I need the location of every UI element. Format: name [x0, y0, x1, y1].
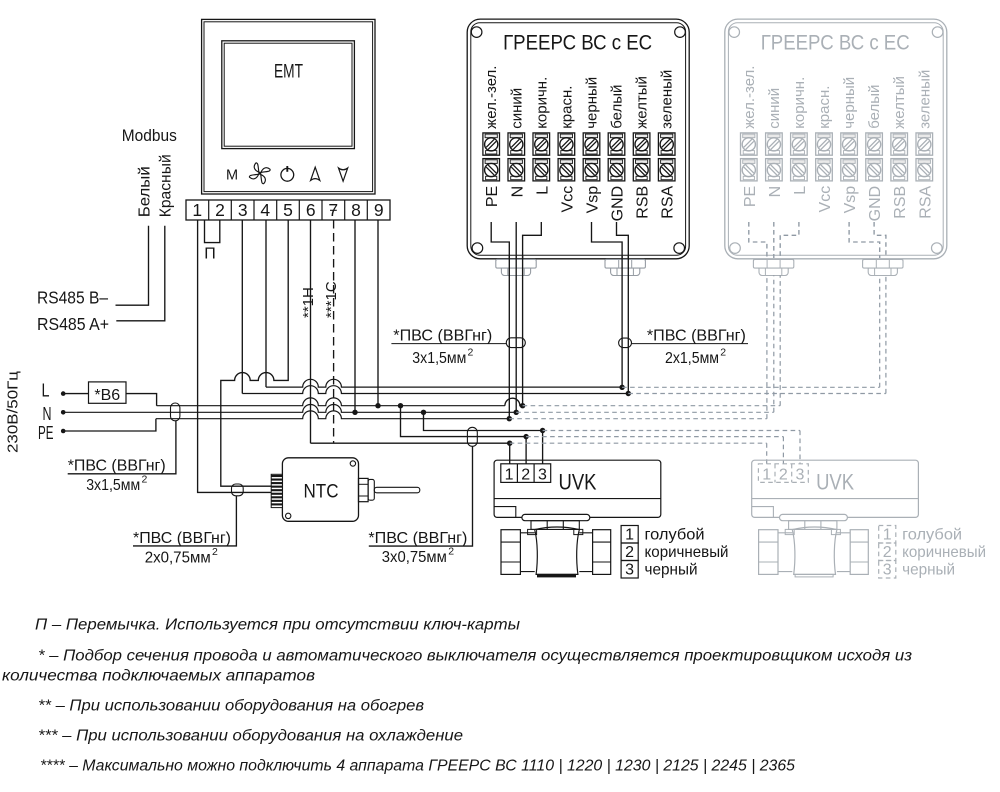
svg-text:2: 2 [142, 473, 148, 485]
svg-text:PE: PE [484, 186, 501, 207]
svg-text:красн.: красн. [816, 86, 833, 129]
svg-text:черный: черный [584, 77, 601, 129]
svg-text:3: 3 [883, 562, 892, 579]
svg-text:M: M [226, 168, 238, 184]
svg-text:ГРЕЕРС ВС с ЕС: ГРЕЕРС ВС с ЕС [503, 32, 652, 55]
svg-text:2х0,75мм: 2х0,75мм [145, 549, 211, 566]
svg-text:GND: GND [867, 186, 884, 222]
svg-text:жел.-зел.: жел.-зел. [483, 66, 500, 129]
svg-text:N: N [509, 186, 526, 198]
svg-text:голубой: голубой [645, 526, 705, 543]
svg-text:2: 2 [883, 544, 892, 561]
svg-text:*ПВС (ВВГнг): *ПВС (ВВГнг) [647, 327, 746, 344]
svg-text:6: 6 [306, 200, 316, 220]
svg-text:8: 8 [351, 200, 361, 220]
svg-text:Vsp: Vsp [585, 186, 602, 214]
svg-text:Modbus: Modbus [122, 126, 177, 145]
svg-text:Vcc: Vcc [559, 186, 576, 213]
svg-text:L: L [42, 380, 50, 400]
svg-text:* – Подбор сечения провода и а: * – Подбор сечения провода и автоматичес… [38, 648, 912, 665]
svg-text:9: 9 [374, 200, 384, 220]
svg-text:L: L [534, 186, 551, 195]
svg-text:2: 2 [468, 346, 474, 358]
svg-text:2: 2 [212, 546, 218, 558]
svg-text:*ПВС (ВВГнг): *ПВС (ВВГнг) [133, 530, 231, 547]
svg-text:желтый: желтый [634, 76, 651, 129]
svg-text:*** – При использовании оборуд: *** – При использовании оборудования на … [38, 728, 463, 745]
svg-text:3: 3 [538, 467, 547, 484]
svg-text:белый: белый [866, 85, 883, 129]
svg-text:RSB: RSB [892, 186, 909, 219]
svg-text:2: 2 [521, 467, 530, 484]
svg-text:2: 2 [215, 200, 225, 220]
svg-text:2: 2 [448, 546, 454, 558]
svg-text:1: 1 [762, 467, 771, 484]
svg-text:черный: черный [645, 561, 698, 578]
svg-text:2: 2 [625, 544, 634, 561]
svg-text:RSA: RSA [917, 185, 934, 218]
svg-text:3х1,5мм: 3х1,5мм [412, 350, 466, 367]
svg-text:L: L [792, 186, 809, 195]
svg-text:UVK: UVK [816, 470, 854, 495]
svg-text:коричневый: коричневый [902, 544, 986, 561]
svg-text:Vsp: Vsp [842, 186, 859, 214]
svg-text:синий: синий [766, 88, 783, 129]
svg-text:3х0,75мм: 3х0,75мм [382, 549, 447, 566]
svg-text:Красный: Красный [158, 154, 175, 217]
svg-text:5: 5 [283, 200, 293, 220]
svg-text:**** – Максимально можно подкл: **** – Максимально можно подключить 4 ап… [40, 758, 795, 775]
svg-text:EMT: EMT [274, 62, 303, 83]
svg-text:коричн.: коричн. [533, 77, 550, 129]
svg-text:красн.: красн. [558, 86, 575, 129]
svg-text:N: N [43, 404, 52, 424]
svg-text:ГРЕЕРС ВС с ЕС: ГРЕЕРС ВС с ЕС [761, 32, 910, 55]
svg-text:2: 2 [720, 346, 726, 358]
svg-text:*ПВС (ВВГнг): *ПВС (ВВГнг) [368, 530, 467, 547]
svg-text:3: 3 [238, 200, 248, 220]
svg-text:RS485 B–: RS485 B– [37, 288, 108, 308]
svg-text:**1Н: **1Н [300, 287, 317, 318]
svg-text:голубой: голубой [902, 526, 962, 543]
svg-text:черный: черный [902, 561, 955, 578]
svg-text:UVK: UVK [559, 470, 597, 495]
svg-text:***1С: ***1С [323, 281, 340, 318]
svg-text:*ПВС (ВВГнг): *ПВС (ВВГнг) [393, 327, 492, 344]
svg-text:Белый: Белый [137, 166, 154, 217]
svg-text:жел.-зел.: жел.-зел. [741, 66, 758, 129]
svg-text:коричневый: коричневый [645, 544, 729, 561]
svg-text:1: 1 [883, 527, 892, 544]
svg-text:** – При использовании оборудо: ** – При использовании оборудования на о… [38, 698, 424, 715]
svg-text:*В6: *В6 [94, 387, 120, 404]
svg-text:RSA: RSA [660, 185, 677, 218]
svg-text:желтый: желтый [891, 76, 908, 129]
svg-text:1: 1 [625, 527, 634, 544]
svg-text:NTC: NTC [304, 482, 339, 503]
svg-text:PE: PE [742, 186, 759, 207]
svg-text:*ПВС (ВВГнг): *ПВС (ВВГнг) [68, 458, 166, 475]
svg-text:белый: белый [609, 85, 626, 129]
svg-text:RS485 A+: RS485 A+ [37, 314, 109, 334]
svg-text:П: П [204, 246, 216, 263]
svg-text:4: 4 [260, 200, 270, 220]
svg-text:230В/50Гц: 230В/50Гц [6, 371, 22, 453]
svg-text:зеленый: зеленый [659, 70, 676, 129]
svg-text:3: 3 [796, 467, 805, 484]
svg-text:черный: черный [841, 77, 858, 129]
svg-text:Vcc: Vcc [817, 186, 834, 213]
svg-text:количества подключаемых аппара: количества подключаемых аппаратов [2, 668, 315, 685]
svg-text:П – Перемычка. Используется пр: П – Перемычка. Используется при отсутств… [35, 617, 521, 634]
svg-text:синий: синий [508, 88, 525, 129]
svg-text:1: 1 [192, 200, 202, 220]
svg-text:RSB: RSB [635, 186, 652, 219]
svg-text:3х1,5мм: 3х1,5мм [86, 477, 140, 494]
svg-text:3: 3 [625, 562, 634, 579]
svg-text:2х1,5мм: 2х1,5мм [665, 350, 719, 367]
svg-text:зеленый: зеленый [916, 70, 933, 129]
svg-text:1: 1 [505, 467, 514, 484]
svg-text:PE: PE [38, 423, 54, 443]
svg-text:N: N [767, 186, 784, 198]
svg-text:2: 2 [779, 467, 788, 484]
svg-text:GND: GND [610, 186, 627, 222]
svg-text:коричн.: коричн. [791, 77, 808, 129]
